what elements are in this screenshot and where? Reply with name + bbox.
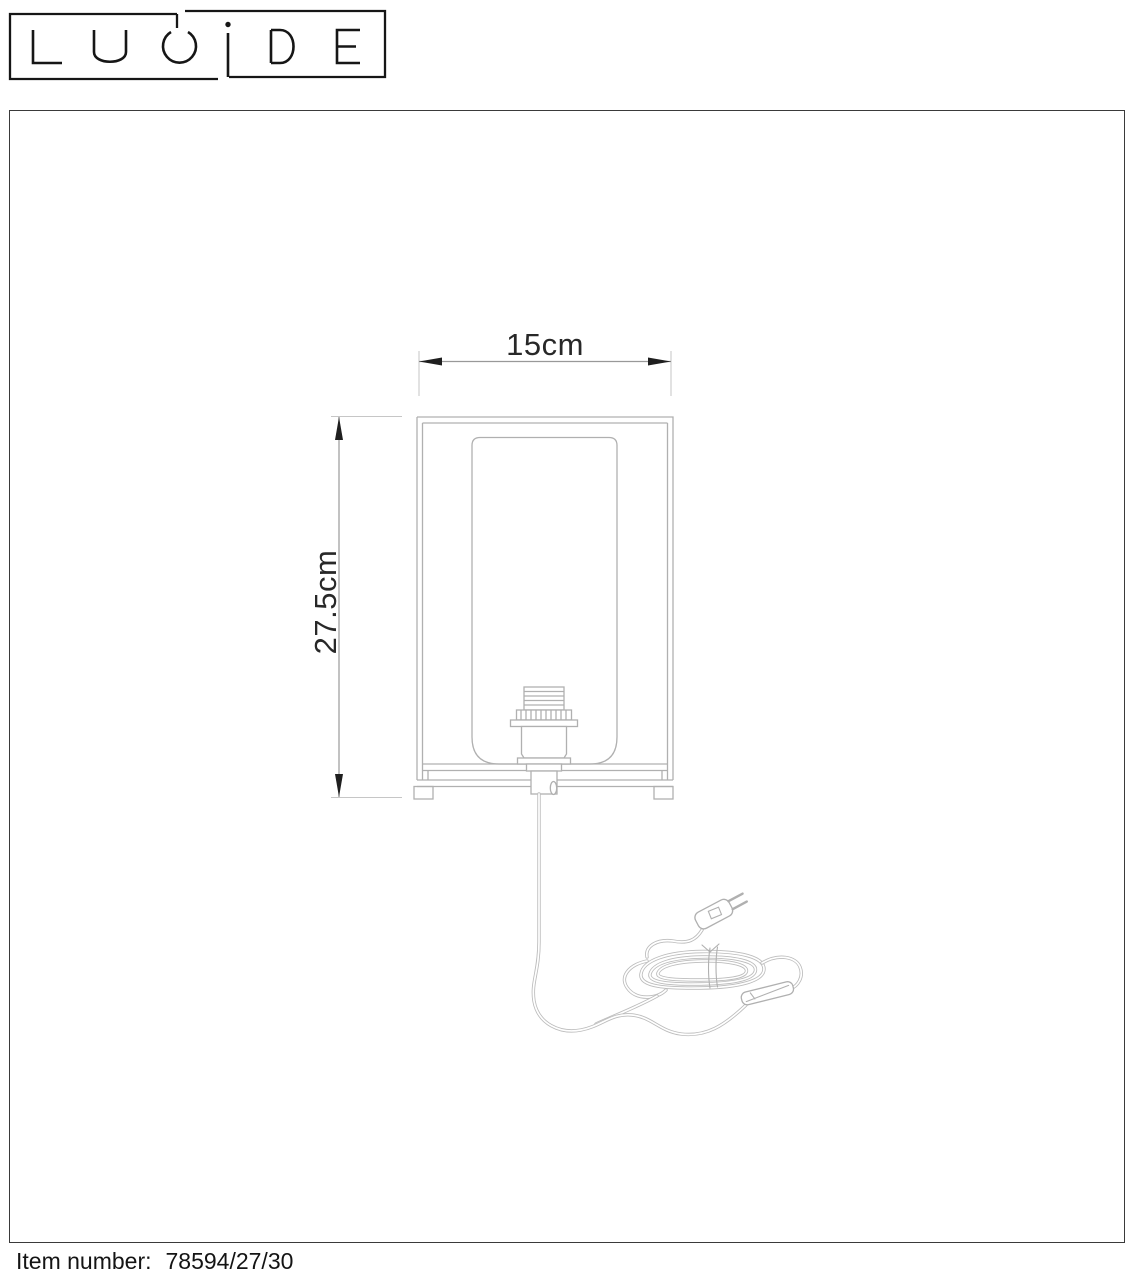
height-dimension-label: 27.5cm — [308, 502, 340, 702]
lamp-socket — [511, 687, 578, 795]
technical-drawing — [0, 0, 1136, 1280]
item-number-label: Item number: — [16, 1248, 152, 1274]
socket-thread — [524, 687, 564, 710]
table-lamp-drawing — [414, 417, 673, 799]
height-arrow-top — [335, 417, 343, 440]
socket-neck — [527, 764, 562, 771]
right-foot — [654, 787, 673, 800]
socket-flange — [511, 720, 578, 727]
item-number-value: 78594/27/30 — [166, 1248, 294, 1274]
power-plug-icon — [693, 890, 749, 931]
cord-grommet — [550, 782, 556, 795]
item-number-row: Item number:78594/27/30 — [16, 1248, 293, 1275]
left-foot — [414, 787, 433, 800]
height-arrow-bottom — [335, 774, 343, 797]
inline-switch-icon — [740, 981, 795, 1006]
socket-body — [522, 727, 567, 759]
power-cord — [533, 794, 801, 1034]
width-dimension-label: 15cm — [419, 327, 671, 363]
socket-skirt — [518, 758, 571, 764]
socket-knurl-ring — [517, 710, 572, 720]
